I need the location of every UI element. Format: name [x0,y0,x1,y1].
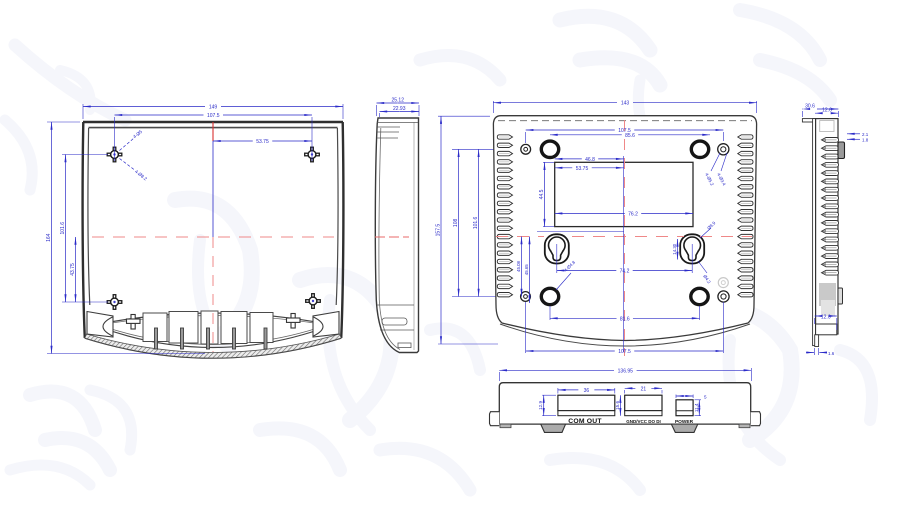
svg-text:46.8: 46.8 [585,157,595,163]
svg-text:POWER: POWER [675,419,694,425]
svg-text:12.6: 12.6 [822,108,832,114]
svg-text:107.5: 107.5 [207,113,220,119]
svg-text:108: 108 [453,219,459,228]
svg-text:11.4: 11.4 [694,403,699,412]
svg-text:15.6: 15.6 [615,401,620,410]
svg-text:1.6: 1.6 [828,351,835,356]
svg-text:GND/VCC DO DI: GND/VCC DO DI [626,419,661,424]
svg-text:74.2: 74.2 [620,269,630,275]
svg-text:30.6: 30.6 [805,104,815,110]
svg-text:36: 36 [584,388,590,394]
svg-text:164: 164 [46,233,52,242]
svg-text:COM OUT: COM OUT [568,418,602,425]
svg-text:107.5: 107.5 [618,349,631,355]
svg-text:53.75: 53.75 [576,166,589,172]
svg-text:45.65: 45.65 [524,264,529,276]
svg-text:101.6: 101.6 [60,222,66,235]
svg-text:76.2: 76.2 [628,211,638,217]
svg-text:22.93: 22.93 [393,106,406,112]
svg-text:14.30: 14.30 [672,243,677,255]
svg-text:12.6: 12.6 [821,315,831,321]
svg-text:85.6: 85.6 [625,133,635,139]
svg-text:157.5: 157.5 [436,224,442,237]
svg-text:21: 21 [641,386,647,392]
svg-text:136.95: 136.95 [618,368,634,374]
svg-text:53.75: 53.75 [256,139,269,145]
svg-text:81.6: 81.6 [620,316,630,322]
svg-text:25.12: 25.12 [391,98,404,104]
svg-text:43.75: 43.75 [70,263,76,276]
svg-text:45.08: 45.08 [516,260,521,272]
svg-text:149: 149 [209,105,218,111]
svg-text:12.9: 12.9 [538,401,543,410]
svg-text:1.8: 1.8 [862,138,869,143]
svg-text:101.6: 101.6 [473,216,479,229]
svg-text:143: 143 [621,101,630,107]
svg-text:5: 5 [704,395,707,400]
svg-text:2.1: 2.1 [862,132,869,137]
svg-text:44.5: 44.5 [539,189,545,199]
